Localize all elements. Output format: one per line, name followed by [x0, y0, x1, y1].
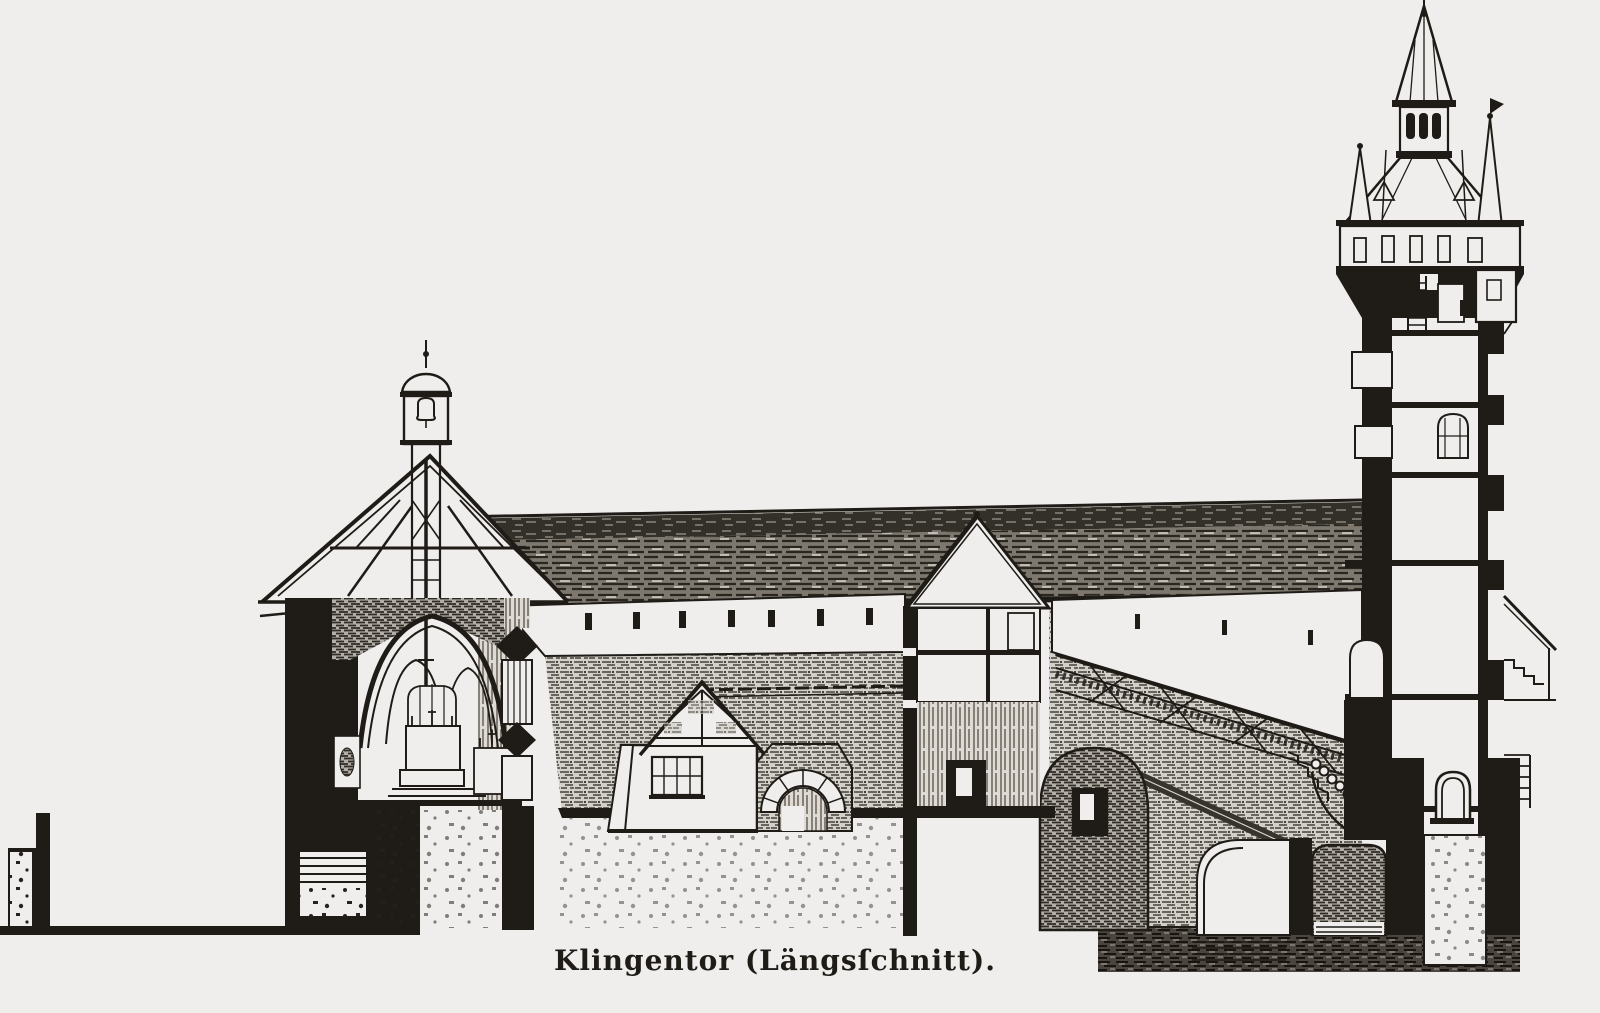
tower-section — [1312, 0, 1556, 965]
bell-icon — [417, 398, 435, 420]
well — [1430, 772, 1474, 824]
cellar-vault — [1040, 748, 1148, 930]
tower-shaft — [1344, 270, 1516, 840]
portal-arch — [757, 744, 852, 831]
chapel-foundation — [285, 806, 534, 935]
gable-finial — [974, 511, 980, 517]
engraving-page: Klingentor (Längsſchnitt). — [0, 0, 1600, 1013]
niche-statue — [334, 736, 360, 788]
tower-spire — [1392, 0, 1456, 107]
tower-door — [1350, 640, 1384, 698]
chapel-section — [258, 340, 568, 935]
rubble-ground — [560, 818, 905, 928]
engraving-canvas — [0, 0, 1600, 1013]
tower-stair-annex — [1504, 596, 1556, 808]
tower-lantern — [1396, 107, 1452, 158]
ground-line-left — [0, 813, 292, 935]
figure-caption: Klingentor (Längsſchnitt). — [540, 944, 1010, 978]
